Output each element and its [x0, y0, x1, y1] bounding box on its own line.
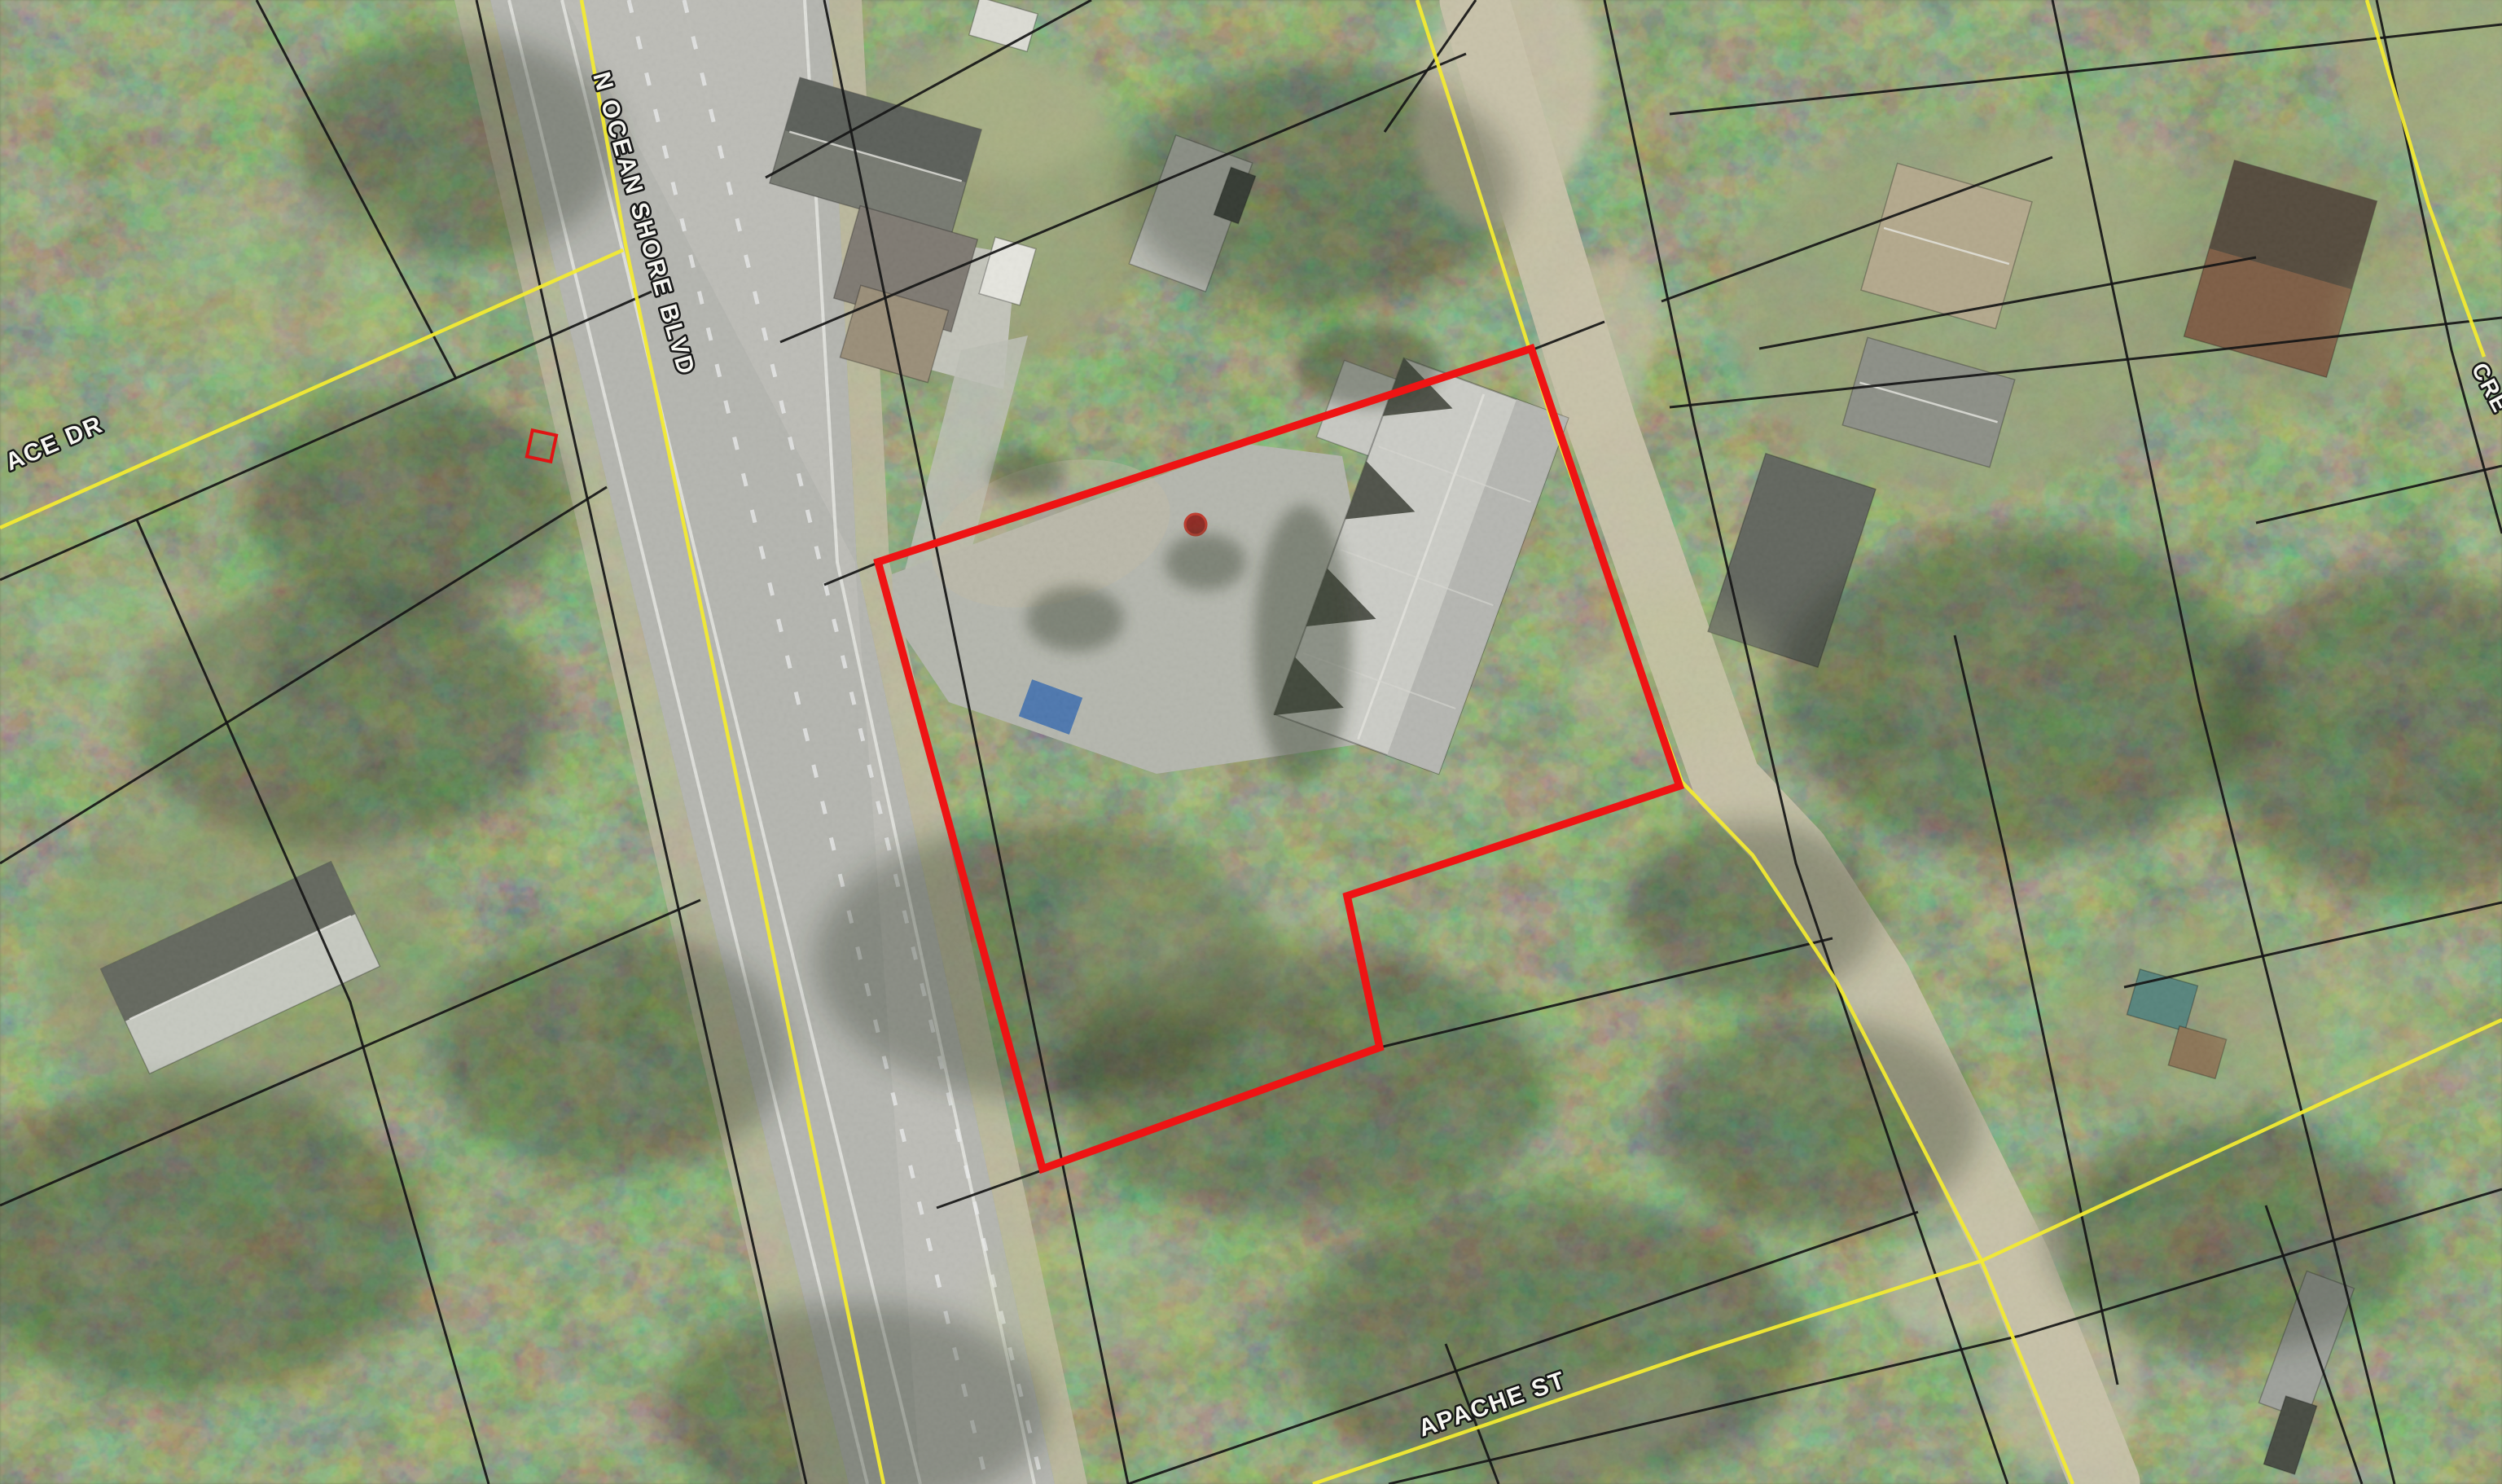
aerial-map-image: N OCEAN SHORE BLVD APACHE ST ACE DR CRE — [0, 0, 2502, 1484]
photo-grain — [0, 0, 2502, 1484]
parcel-map-canvas: N OCEAN SHORE BLVD APACHE ST ACE DR CRE — [0, 0, 2502, 1484]
